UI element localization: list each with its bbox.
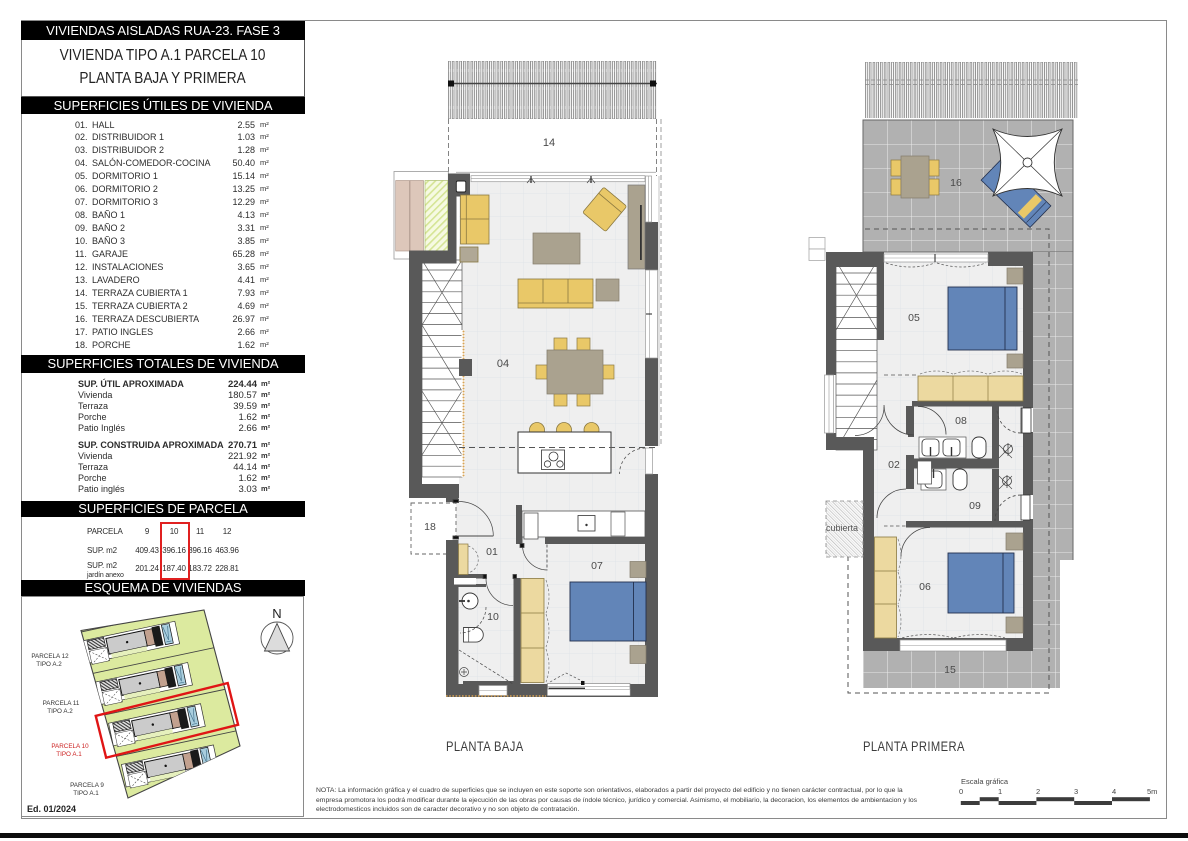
svg-text:06: 06 bbox=[919, 581, 931, 593]
svg-text:PARCELA 10: PARCELA 10 bbox=[51, 743, 89, 750]
svg-text:10: 10 bbox=[487, 611, 499, 623]
svg-text:09: 09 bbox=[969, 500, 981, 512]
svg-text:cubierta: cubierta bbox=[826, 523, 858, 533]
svg-text:5m: 5m bbox=[1147, 787, 1157, 796]
svg-text:05: 05 bbox=[908, 312, 920, 324]
svg-text:N: N bbox=[272, 606, 281, 621]
svg-text:02: 02 bbox=[888, 459, 900, 471]
svg-text:TIPO A.1: TIPO A.1 bbox=[73, 790, 99, 797]
svg-text:1: 1 bbox=[998, 787, 1002, 796]
svg-text:4: 4 bbox=[1112, 787, 1116, 796]
svg-text:Escala gráfica: Escala gráfica bbox=[961, 777, 1009, 786]
svg-text:18: 18 bbox=[424, 521, 436, 533]
svg-text:PARCELA 12: PARCELA 12 bbox=[31, 653, 69, 660]
svg-text:01: 01 bbox=[486, 546, 498, 558]
svg-text:Ed. 01/2024: Ed. 01/2024 bbox=[27, 804, 76, 814]
svg-text:TIPO A.2: TIPO A.2 bbox=[47, 708, 73, 715]
svg-text:08: 08 bbox=[955, 415, 967, 427]
svg-text:15: 15 bbox=[944, 664, 956, 676]
svg-text:PARCELA 11: PARCELA 11 bbox=[43, 700, 80, 707]
svg-text:04: 04 bbox=[497, 358, 509, 370]
svg-text:14: 14 bbox=[543, 137, 555, 149]
svg-text:16: 16 bbox=[950, 177, 962, 189]
svg-text:TIPO A.2: TIPO A.2 bbox=[36, 661, 62, 668]
svg-text:07: 07 bbox=[591, 560, 603, 572]
svg-text:3: 3 bbox=[1074, 787, 1078, 796]
svg-text:2: 2 bbox=[1036, 787, 1040, 796]
svg-text:0: 0 bbox=[959, 787, 963, 796]
svg-text:TIPO A.1: TIPO A.1 bbox=[56, 751, 82, 758]
svg-text:PARCELA 9: PARCELA 9 bbox=[70, 782, 104, 789]
